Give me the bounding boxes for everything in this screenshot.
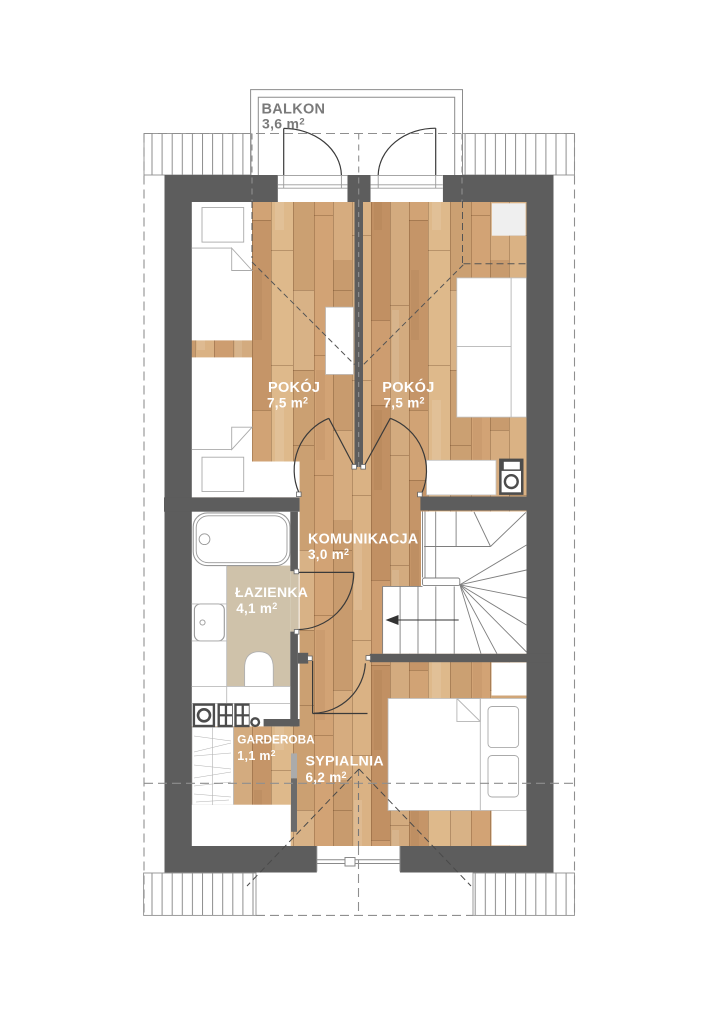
svg-text:SYPIALNIA: SYPIALNIA [306,754,384,770]
svg-text:3,6 m2: 3,6 m2 [262,116,305,132]
svg-text:POKÓJ: POKÓJ [382,378,434,396]
svg-text:6,2 m2: 6,2 m2 [306,770,347,785]
svg-text:1,1 m2: 1,1 m2 [237,748,275,763]
svg-text:POKÓJ: POKÓJ [268,378,320,396]
svg-text:7,5 m2: 7,5 m2 [267,396,308,411]
svg-text:ŁAZIENKA: ŁAZIENKA [235,584,308,600]
svg-text:7,5 m2: 7,5 m2 [384,396,425,411]
svg-text:GARDEROBA: GARDEROBA [237,733,315,747]
svg-text:4,1 m2: 4,1 m2 [236,601,277,616]
svg-text:KOMUNIKACJA: KOMUNIKACJA [308,532,419,548]
svg-text:3,0 m2: 3,0 m2 [308,547,349,562]
